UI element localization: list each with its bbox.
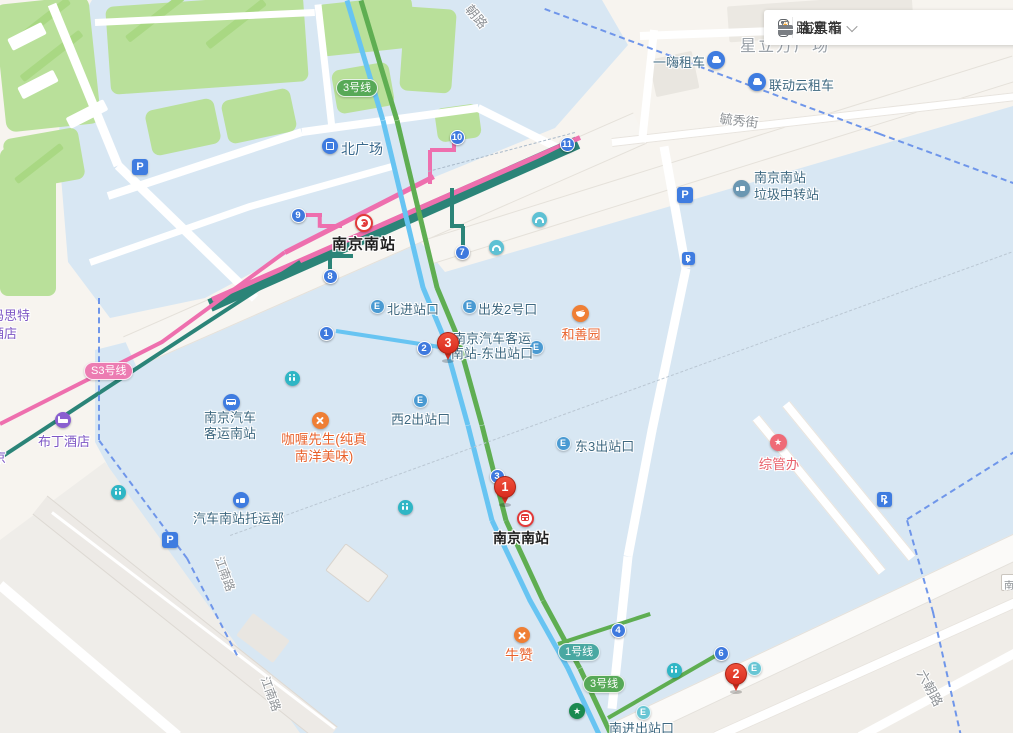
subway-exit-4[interactable]: 4 xyxy=(611,623,626,638)
icon-glyph xyxy=(492,245,501,251)
icon-glyph xyxy=(526,518,528,520)
label-line: 客运南站 xyxy=(204,426,256,442)
icon-glyph xyxy=(406,503,408,505)
label-north-entrance[interactable]: 北进站口 xyxy=(387,299,439,318)
car-rental-icon[interactable] xyxy=(748,73,766,91)
label-mastel-hotel-line2[interactable]: 酒店 xyxy=(0,323,17,342)
icon-glyph xyxy=(363,222,366,225)
label-south-entrance[interactable]: 南进出站口 xyxy=(609,718,674,733)
exit-icon[interactable]: E xyxy=(556,436,571,451)
marker-pin-3[interactable]: 3 xyxy=(437,332,459,354)
restroom-icon[interactable] xyxy=(398,500,413,515)
government-icon[interactable]: ★ xyxy=(770,434,787,451)
icon-glyph xyxy=(576,312,585,317)
exit-icon[interactable]: E xyxy=(462,299,477,314)
label-departure-gate-2[interactable]: 出发2号口 xyxy=(478,299,537,318)
icon-glyph xyxy=(236,499,239,502)
car-rental-icon[interactable] xyxy=(707,51,725,69)
line-s1 xyxy=(330,254,353,258)
icon-glyph xyxy=(402,503,404,505)
label-bus-station[interactable]: 南京汽车客运南站 xyxy=(204,410,256,442)
icon-glyph xyxy=(289,374,291,376)
label-line: 南洋美味) xyxy=(281,448,367,465)
subway-exit-10[interactable]: 10 xyxy=(450,130,465,145)
icon-glyph xyxy=(402,506,405,511)
icon-glyph xyxy=(535,217,544,223)
subway-exit-1[interactable]: 1 xyxy=(319,326,334,341)
icon-glyph xyxy=(293,374,295,376)
label-freight-office[interactable]: 汽车南站托运部 xyxy=(193,508,284,527)
icon-glyph xyxy=(228,404,230,406)
parking-icon[interactable]: P xyxy=(877,492,892,507)
metro-logo-icon[interactable] xyxy=(355,214,373,232)
label-heshanyuan[interactable]: 和善园 xyxy=(561,324,600,343)
parking-arrow xyxy=(884,499,891,505)
icon-glyph xyxy=(227,400,235,402)
subway-exit-9[interactable]: 9 xyxy=(291,208,306,223)
subway-exit-2[interactable]: 2 xyxy=(417,341,432,356)
exit-icon[interactable]: E xyxy=(413,393,428,408)
label-curry-mister[interactable]: 咖喱先生(纯真南洋美味) xyxy=(281,431,367,465)
restaurant-icon[interactable] xyxy=(514,627,530,643)
green-poi-icon[interactable]: ★ xyxy=(569,703,585,719)
toolbox-label: 工具箱 xyxy=(800,18,842,38)
freight-icon[interactable] xyxy=(233,492,249,508)
icon-glyph xyxy=(522,518,524,520)
icon-glyph xyxy=(754,78,760,82)
hotel-icon[interactable] xyxy=(55,412,71,428)
plaza-icon[interactable] xyxy=(322,138,338,154)
label-zongguanban[interactable]: 综管办 xyxy=(759,453,800,473)
exit-icon[interactable]: E xyxy=(747,661,762,676)
icon-glyph xyxy=(671,666,673,668)
icon-glyph xyxy=(326,142,334,150)
subway-exit-6[interactable]: 6 xyxy=(714,646,729,661)
label-line: 垃圾中转站 xyxy=(754,186,819,203)
label-mastel-hotel-line1[interactable]: 玛思特 xyxy=(0,305,30,324)
icon-glyph xyxy=(240,498,246,503)
icon-glyph xyxy=(115,488,117,490)
toolbox-icon xyxy=(778,25,793,35)
icon-glyph xyxy=(675,666,677,668)
restroom-icon[interactable] xyxy=(285,371,300,386)
map-canvas[interactable]: ☀ 南京市 路况 工具箱 S3号线3号线1号线3号线123467891011EE… xyxy=(0,0,1013,733)
label-line: 南站-东出站口 xyxy=(451,346,533,361)
restaurant-icon[interactable] xyxy=(312,412,329,429)
label-liandongyun-car-rental[interactable]: 联动云租车 xyxy=(769,75,834,94)
icon-glyph xyxy=(740,186,746,191)
road-sign-south: 南 xyxy=(1004,577,1013,592)
garbage-truck-icon[interactable] xyxy=(733,180,750,197)
icon-glyph xyxy=(115,491,118,496)
label-niuzan[interactable]: 牛赞 xyxy=(505,645,533,665)
subway-exit-7[interactable]: 7 xyxy=(455,245,470,260)
icon-glyph xyxy=(289,377,292,382)
label-line: 南京南站 xyxy=(754,169,819,186)
icon-glyph xyxy=(671,669,674,674)
label-hotel-partial[interactable]: 京 xyxy=(0,447,6,466)
map-toolbar: ☀ 南京市 路况 工具箱 xyxy=(764,10,1013,45)
subway-exit-11[interactable]: 11 xyxy=(560,137,575,152)
label-east-exit-3[interactable]: 东3出站口 xyxy=(575,436,634,455)
restroom-icon[interactable] xyxy=(667,663,682,678)
parking-arrow xyxy=(687,257,694,263)
restroom-icon[interactable] xyxy=(111,485,126,500)
icon-glyph xyxy=(713,56,719,60)
label-line: 南京汽车 xyxy=(204,410,256,426)
parking-icon[interactable]: P xyxy=(677,187,693,203)
bus-station-icon[interactable] xyxy=(223,394,240,411)
icon-glyph xyxy=(522,516,528,517)
line-badge-3-top: 3号线 xyxy=(336,79,378,97)
icon-glyph xyxy=(119,491,122,496)
footbridge-icon[interactable] xyxy=(532,212,547,227)
icon-glyph xyxy=(675,669,678,674)
park-patch xyxy=(399,6,457,93)
toolbox-button[interactable]: 工具箱 xyxy=(778,18,842,38)
label-line: 咖喱先生(纯真 xyxy=(281,431,367,448)
icon-glyph xyxy=(119,488,121,490)
subway-exit-8[interactable]: 8 xyxy=(323,269,338,284)
railway-station-icon[interactable] xyxy=(517,510,534,527)
icon-glyph xyxy=(58,416,60,423)
label-yihai-car-rental[interactable]: 一嗨租车 xyxy=(653,52,705,71)
icon-glyph xyxy=(293,377,296,382)
label-bus-station-east-exit[interactable]: 南京汽车客运南站-东出站口 xyxy=(451,331,533,361)
exit-icon[interactable]: E xyxy=(370,299,385,314)
parking-icon[interactable]: P xyxy=(162,532,178,548)
label-nanjing-south-metro[interactable]: 南京南站 xyxy=(332,233,396,254)
icon-glyph xyxy=(406,506,409,511)
label-nanjing-south-railway[interactable]: 南京南站 xyxy=(493,528,549,548)
restaurant-icon[interactable] xyxy=(572,305,589,322)
label-west-exit-2[interactable]: 西2出站口 xyxy=(391,409,450,428)
icon-glyph xyxy=(736,187,739,190)
label-garbage-transfer-station[interactable]: 南京南站垃圾中转站 xyxy=(754,169,819,203)
line-s3 xyxy=(320,224,342,228)
line-s3 xyxy=(428,150,432,184)
parking-icon[interactable]: P xyxy=(132,159,148,175)
line-badge-s3: S3号线 xyxy=(84,362,133,380)
line-badge-3-bottom: 3号线 xyxy=(583,675,625,693)
line-badge-1: 1号线 xyxy=(558,643,600,661)
label-north-square[interactable]: 北广场 xyxy=(341,139,383,159)
marker-pin-2[interactable]: 2 xyxy=(725,663,747,685)
footbridge-icon[interactable] xyxy=(489,240,504,255)
parking-icon[interactable]: P xyxy=(682,252,695,265)
marker-pin-1[interactable]: 1 xyxy=(494,476,516,498)
label-buding-hotel[interactable]: 布丁酒店 xyxy=(38,431,90,450)
line-s1 xyxy=(450,188,454,228)
label-line: 南京汽车客运 xyxy=(451,331,533,346)
chevron-down-icon xyxy=(847,20,858,31)
